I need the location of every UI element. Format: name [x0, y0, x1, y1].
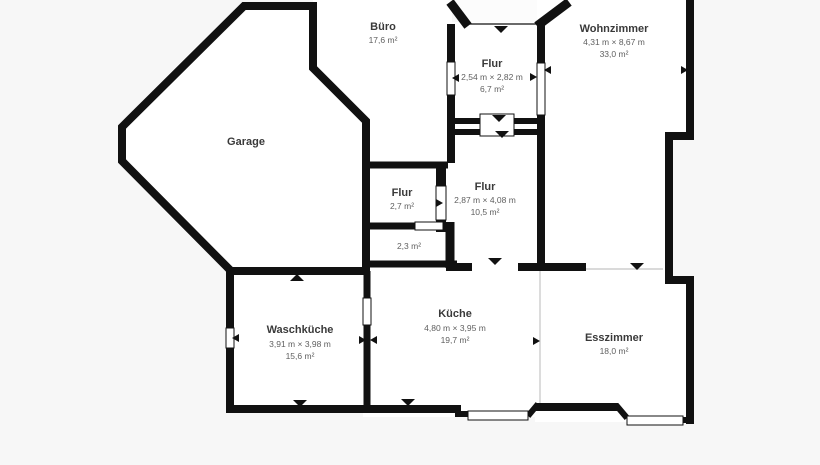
room-title: Garage	[227, 136, 265, 148]
room-title: Küche	[438, 308, 472, 320]
room-area: 6,7 m²	[480, 84, 504, 94]
room-area: 19,7 m²	[441, 335, 470, 345]
room-dims: 2,54 m × 2,82 m	[461, 72, 523, 82]
room-area: 10,5 m²	[471, 207, 500, 217]
window-bottom-esszimmer	[627, 416, 683, 425]
door-abstellraum	[415, 222, 443, 230]
room-title: Esszimmer	[585, 332, 644, 344]
room-area: 2,7 m²	[390, 201, 414, 211]
door-waschkueche-kueche	[363, 298, 371, 325]
window-bottom-kueche	[468, 411, 528, 420]
window-wohnzimmer-left	[537, 63, 545, 115]
room-title: Flur	[482, 58, 503, 70]
label-garage: Garage	[227, 136, 265, 148]
floorplan-canvas: Büro 17,6 m² Garage Flur 2,54 m × 2,82 m…	[0, 0, 820, 465]
room-title: Flur	[475, 181, 496, 193]
room-area: 18,0 m²	[600, 346, 629, 356]
room-fills	[122, 0, 692, 422]
room-dims: 2,87 m × 4,08 m	[454, 195, 516, 205]
room-dims: 3,91 m × 3,98 m	[269, 339, 331, 349]
label-abstellraum: 2,3 m²	[397, 241, 421, 251]
room-area: 33,0 m²	[600, 49, 629, 59]
room-area: 17,6 m²	[369, 35, 398, 45]
floorplan-svg: Büro 17,6 m² Garage Flur 2,54 m × 2,82 m…	[0, 0, 820, 465]
room-title: Waschküche	[267, 324, 334, 336]
room-area: 2,3 m²	[397, 241, 421, 251]
room-title: Büro	[370, 21, 396, 33]
room-title: Wohnzimmer	[580, 23, 650, 35]
room-dims: 4,80 m × 3,95 m	[424, 323, 486, 333]
room-dims: 4,31 m × 8,67 m	[583, 37, 645, 47]
room-title: Flur	[392, 187, 413, 199]
room-area: 15,6 m²	[286, 351, 315, 361]
